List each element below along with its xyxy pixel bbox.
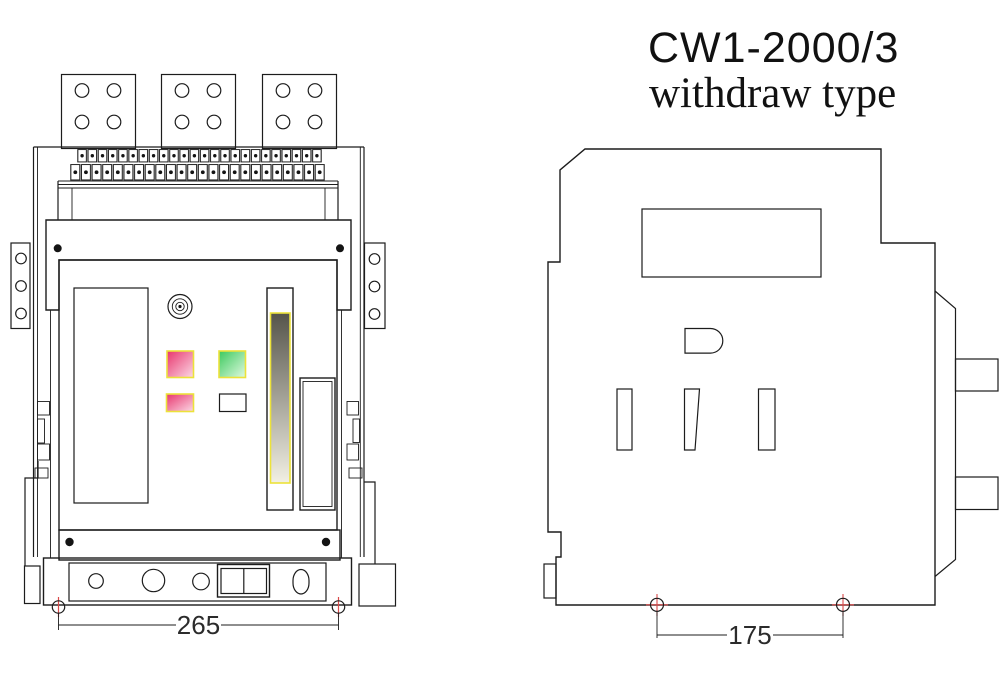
keyhole: [168, 295, 192, 319]
panel-screw-top-left: [54, 244, 62, 252]
front-view: 265: [11, 75, 396, 641]
terminal-screw-dot: [233, 170, 237, 174]
terminal-screw-dot: [274, 154, 277, 157]
terminal-stab-2: [956, 477, 999, 510]
terminal-screw-dot: [190, 170, 194, 174]
plinth-hole-small-2: [193, 573, 210, 590]
neck-section: [58, 181, 338, 220]
terminal-screw-dot: [212, 170, 216, 174]
bottom-plinth: [44, 558, 352, 605]
terminal-screw-dot: [111, 154, 114, 157]
terminal-screw-dot: [318, 170, 322, 174]
terminal-screw-dot: [254, 154, 257, 157]
busbar-pad-3: [263, 75, 337, 149]
terminal-screw-dot: [142, 154, 145, 157]
terminal-screw-dot: [172, 154, 175, 157]
terminal-screw-dot: [305, 154, 308, 157]
white-indicator-small: [220, 394, 247, 412]
terminal-screw-dot: [222, 170, 226, 174]
busbar-pad-2: [162, 75, 236, 149]
terminal-screw-dot: [201, 170, 205, 174]
terminal-screw-dot: [182, 154, 185, 157]
side-view: 175: [544, 149, 998, 650]
terminal-screw-dot: [275, 170, 279, 174]
terminal-screw-dot: [95, 170, 99, 174]
face-panel: [46, 220, 351, 560]
drawing-page: 265: [0, 0, 1000, 680]
racking-interlock-button: [218, 565, 270, 598]
front-dimension: 265: [52, 597, 344, 640]
right-escutcheon: [300, 378, 335, 510]
terminal-screw-dot: [137, 170, 141, 174]
terminal-screw-dot: [162, 154, 165, 157]
terminal-screw-dot: [73, 170, 77, 174]
type-title: withdraw type: [649, 70, 896, 117]
terminal-screw-dot: [169, 170, 173, 174]
terminal-screw-dot: [148, 170, 152, 174]
terminal-screw-dot: [265, 170, 269, 174]
terminal-screw-dot: [285, 154, 288, 157]
nameplate-window: [74, 288, 148, 503]
terminal-screw-dot: [286, 170, 290, 174]
terminal-screw-dot: [121, 154, 124, 157]
terminal-screw-dot: [203, 154, 206, 157]
terminal-screw-dot: [264, 154, 267, 157]
racking-slot-oval: [293, 570, 309, 595]
terminal-screw-dot: [307, 170, 311, 174]
handle-cutout: [685, 329, 723, 354]
panel-screw-top-right: [336, 244, 344, 252]
terminal-screw-dot: [193, 154, 196, 157]
slider-slot: [267, 288, 293, 510]
terminal-screw-dot: [180, 170, 184, 174]
terminal-screw-dot: [223, 154, 226, 157]
side-depth-dimension-label: 175: [728, 620, 771, 650]
green-indicator-square: [219, 351, 246, 378]
title-block: CW1-2000/3 withdraw type: [648, 24, 899, 117]
busbar-pad-1: [62, 75, 136, 149]
terminal-screw-dot: [244, 154, 247, 157]
terminal-screw-dot: [152, 154, 155, 157]
terminal-screw-dot: [91, 154, 94, 157]
terminal-screw-dot: [105, 170, 109, 174]
side-dimension: 175: [646, 594, 854, 650]
front-width-dimension-label: 265: [177, 610, 220, 640]
model-title: CW1-2000/3: [648, 24, 899, 72]
guide-block: [544, 564, 556, 598]
terminal-screw-dot: [243, 170, 247, 174]
terminal-screw-dot: [234, 154, 237, 157]
circuit-breaker-technical-drawing: 265: [0, 0, 1000, 680]
gradient-slider: [271, 313, 291, 483]
rail-guides: [35, 402, 362, 479]
terminal-screw-dot: [84, 170, 88, 174]
panel-screw-bottom-left: [65, 538, 73, 546]
terminal-screw-dot: [315, 154, 318, 157]
rear-terminals: [935, 291, 998, 577]
cradle-shell: [34, 147, 365, 558]
terminal-screw-dot: [116, 170, 120, 174]
terminal-screw-dot: [80, 154, 83, 157]
terminal-screw-dot: [127, 170, 131, 174]
panel-screw-bottom-right: [322, 538, 330, 546]
mounting-bracket-left: [11, 243, 30, 329]
terminal-screw-dot: [101, 154, 104, 157]
secondary-terminal-strips: [70, 149, 325, 181]
terminal-screw-dot: [295, 154, 298, 157]
terminal-screw-dot: [213, 154, 216, 157]
plinth-hole-large: [142, 569, 164, 591]
busbar-pads: [62, 75, 337, 149]
terminal-screw-dot: [297, 170, 301, 174]
terminal-screw-dot: [158, 170, 162, 174]
pink-indicator-square: [167, 351, 194, 378]
side-nameplate-recess: [642, 209, 821, 277]
plinth-hole-small-1: [89, 574, 104, 589]
terminal-screw-dot: [254, 170, 258, 174]
terminal-stab-1: [956, 359, 999, 391]
pink-indicator-small: [167, 394, 194, 412]
side-body-outline: [548, 149, 935, 605]
terminal-screw-dot: [131, 154, 134, 157]
side-slots: [617, 389, 775, 450]
mounting-bracket-right: [365, 243, 386, 329]
